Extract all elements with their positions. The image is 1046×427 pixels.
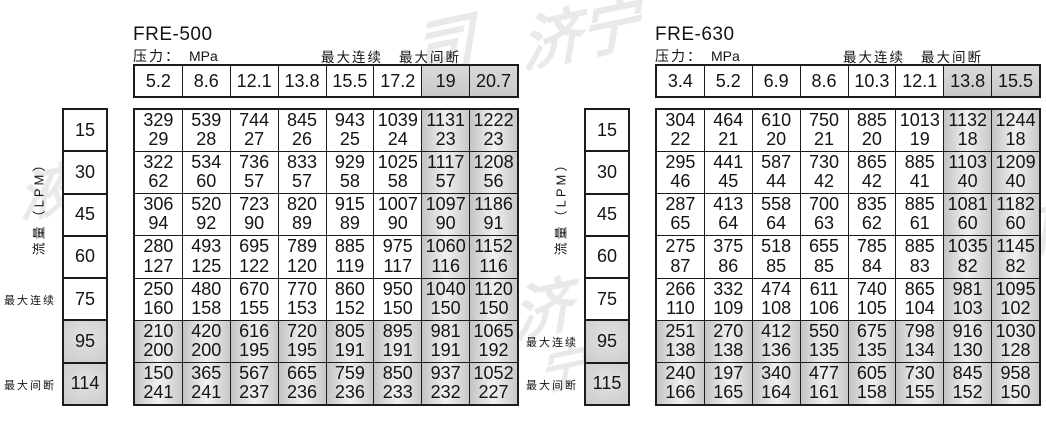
pressure-header-cell: 5.2 — [704, 66, 752, 96]
primary-value: 916 — [953, 322, 983, 341]
data-cell: 110340 — [943, 152, 991, 193]
primary-value: 587 — [761, 153, 791, 172]
secondary-value: 22 — [670, 130, 690, 149]
row-group-label: 最大间断 — [522, 377, 578, 393]
primary-value: 210 — [143, 322, 173, 341]
data-cell: 113123 — [421, 110, 469, 151]
primary-value: 322 — [143, 153, 173, 172]
primary-value: 304 — [665, 111, 695, 130]
data-row: 2661103321094741086111067401058651049811… — [657, 278, 1039, 320]
primary-value: 975 — [383, 237, 413, 256]
data-cell: 332109 — [704, 279, 752, 320]
primary-value: 240 — [665, 364, 695, 383]
flow-axis-label: 流量（LPM） — [28, 110, 48, 300]
secondary-value: 60 — [958, 214, 978, 233]
flow-axis-text: 流量（LPM） — [551, 155, 570, 255]
flow-label-cell: 60 — [584, 235, 630, 279]
data-cell: 937232 — [421, 363, 469, 404]
primary-value: 1052 — [474, 364, 514, 383]
data-cell: 114582 — [991, 236, 1039, 277]
secondary-value: 116 — [431, 257, 460, 276]
primary-value: 1209 — [996, 153, 1036, 172]
secondary-value: 116 — [479, 257, 508, 276]
flow-label-cell: 115 — [584, 362, 630, 406]
secondary-value: 136 — [761, 341, 791, 360]
data-row: 3069452092723908208991589100790109790118… — [135, 193, 517, 235]
secondary-value: 241 — [143, 383, 173, 402]
data-cell: 55864 — [752, 194, 800, 235]
secondary-value: 233 — [383, 383, 413, 402]
max-continuous-legend: 最大连续 — [321, 46, 383, 66]
pressure-header-cell: 10.3 — [848, 66, 896, 96]
secondary-value: 153 — [287, 299, 317, 318]
flow-label-cell: 15 — [584, 108, 630, 152]
primary-value: 700 — [809, 195, 839, 214]
max-intermittent-legend: 最大间断 — [399, 46, 461, 66]
primary-value: 1103 — [948, 153, 987, 172]
primary-value: 798 — [905, 322, 935, 341]
primary-value: 464 — [713, 111, 743, 130]
primary-value: 270 — [713, 322, 743, 341]
max-continuous-legend: 最大连续 — [843, 46, 905, 66]
flow-label-cell: 95 — [62, 319, 108, 363]
primary-value: 1030 — [996, 322, 1036, 341]
primary-value: 860 — [335, 280, 365, 299]
secondary-value: 191 — [431, 341, 461, 360]
primary-value: 518 — [761, 237, 791, 256]
secondary-value: 152 — [953, 383, 983, 402]
primary-value: 670 — [239, 280, 269, 299]
data-cell: 197165 — [704, 363, 752, 404]
model-title: FRE-630 — [655, 24, 735, 46]
flow-label-cell: 45 — [62, 193, 108, 237]
pressure-header-cell: 8.6 — [800, 66, 848, 96]
data-cell: 120940 — [991, 152, 1039, 193]
primary-value: 1065 — [474, 322, 514, 341]
data-cell: 805191 — [326, 321, 374, 362]
primary-value: 280 — [143, 237, 173, 256]
secondary-value: 192 — [479, 341, 509, 360]
secondary-value: 109 — [713, 299, 743, 318]
secondary-value: 160 — [143, 299, 173, 318]
primary-value: 885 — [857, 111, 887, 130]
secondary-value: 104 — [905, 299, 935, 318]
primary-value: 287 — [665, 195, 695, 214]
data-cell: 975117 — [373, 236, 421, 277]
primary-value: 950 — [383, 280, 413, 299]
data-cell: 61020 — [752, 110, 800, 151]
primary-value: 329 — [143, 111, 173, 130]
data-cell: 1052227 — [469, 363, 517, 404]
secondary-value: 87 — [670, 257, 690, 276]
pressure-label: 压力： — [133, 46, 181, 66]
data-cell: 32262 — [135, 152, 182, 193]
primary-value: 1039 — [378, 111, 418, 130]
data-cell: 916130 — [943, 321, 991, 362]
primary-value: 375 — [713, 237, 743, 256]
data-cell: 150241 — [135, 363, 182, 404]
column-legend: 最大连续 最大间断 — [843, 46, 983, 66]
data-row: 2401661971653401644771616051587301558451… — [657, 362, 1039, 404]
secondary-value: 23 — [436, 130, 456, 149]
secondary-value: 57 — [292, 172, 312, 191]
primary-value: 1040 — [426, 280, 466, 299]
pressure-header-cell: 3.4 — [657, 66, 704, 96]
row-group-label: 最大连续 — [0, 292, 56, 308]
secondary-value: 155 — [905, 383, 935, 402]
primary-value: 1025 — [378, 153, 418, 172]
data-cell: 958150 — [991, 363, 1039, 404]
secondary-value: 158 — [191, 299, 221, 318]
primary-value: 655 — [809, 237, 839, 256]
secondary-value: 200 — [143, 341, 173, 360]
data-cell: 412136 — [752, 321, 800, 362]
data-cell: 100790 — [373, 194, 421, 235]
primary-value: 885 — [905, 195, 935, 214]
primary-value: 695 — [239, 237, 269, 256]
data-cell: 27587 — [657, 236, 704, 277]
data-cell: 240166 — [657, 363, 704, 404]
secondary-value: 106 — [809, 299, 839, 318]
primary-value: 895 — [383, 322, 413, 341]
data-cell: 789120 — [278, 236, 326, 277]
secondary-value: 227 — [479, 383, 509, 402]
primary-value: 730 — [809, 153, 839, 172]
data-cell: 37586 — [704, 236, 752, 277]
secondary-value: 161 — [809, 383, 839, 402]
data-cell: 865104 — [895, 279, 943, 320]
data-cell: 103924 — [373, 110, 421, 151]
pressure-header-cell: 5.2 — [135, 66, 182, 96]
primary-value: 493 — [191, 237, 221, 256]
secondary-value: 150 — [431, 299, 461, 318]
secondary-value: 23 — [484, 130, 504, 149]
flow-label-column: 153045607595115 — [584, 108, 630, 406]
data-cell: 109790 — [421, 194, 469, 235]
secondary-value: 90 — [388, 214, 408, 233]
pressure-axis-line: 压力： MPa — [133, 46, 218, 66]
primary-value: 833 — [287, 153, 317, 172]
flow-label-cell: 75 — [584, 277, 630, 321]
fre-630-table: FRE-630 压力： MPa 最大连续 最大间断 流量（LPM） 3.45.2… — [522, 0, 1046, 427]
secondary-value: 103 — [953, 299, 983, 318]
secondary-value: 92 — [196, 214, 216, 233]
secondary-value: 61 — [910, 214, 930, 233]
data-cell: 53928 — [182, 110, 230, 151]
secondary-value: 200 — [191, 341, 221, 360]
secondary-value: 102 — [1001, 299, 1031, 318]
secondary-value: 90 — [244, 214, 264, 233]
data-cell: 78584 — [848, 236, 896, 277]
data-cell: 493125 — [182, 236, 230, 277]
data-cell: 845152 — [943, 363, 991, 404]
column-legend: 最大连续 最大间断 — [321, 46, 461, 66]
data-cell: 88561 — [895, 194, 943, 235]
secondary-value: 65 — [670, 214, 690, 233]
primary-value: 611 — [810, 280, 839, 299]
pressure-header-cell: 15.5 — [326, 66, 374, 96]
secondary-value: 62 — [862, 214, 882, 233]
model-title: FRE-500 — [133, 24, 213, 46]
flow-label-cell: 95 — [584, 319, 630, 363]
secondary-value: 236 — [335, 383, 365, 402]
pressure-header-cell: 12.1 — [895, 66, 943, 96]
secondary-value: 44 — [766, 172, 786, 191]
primary-value: 865 — [857, 153, 887, 172]
primary-value: 937 — [431, 364, 461, 383]
flow-label-cell: 45 — [584, 193, 630, 237]
primary-value: 885 — [905, 237, 935, 256]
secondary-value: 236 — [287, 383, 317, 402]
primary-value: 616 — [239, 322, 269, 341]
primary-value: 558 — [761, 195, 791, 214]
secondary-value: 45 — [718, 172, 738, 191]
secondary-value: 60 — [1006, 214, 1026, 233]
primary-value: 266 — [665, 280, 695, 299]
data-cell: 1152116 — [469, 236, 517, 277]
data-cell: 73657 — [230, 152, 278, 193]
secondary-value: 152 — [335, 299, 365, 318]
secondary-value: 110 — [666, 299, 695, 318]
secondary-value: 165 — [713, 383, 743, 402]
primary-value: 539 — [191, 111, 221, 130]
secondary-value: 40 — [958, 172, 978, 191]
primary-value: 981 — [953, 280, 983, 299]
data-cell: 1030128 — [991, 321, 1039, 362]
data-cell: 74427 — [230, 110, 278, 151]
primary-value: 1131 — [426, 111, 465, 130]
secondary-value: 28 — [196, 130, 216, 149]
pressure-header-cell: 19 — [421, 66, 469, 96]
secondary-value: 127 — [143, 257, 173, 276]
secondary-value: 82 — [1006, 257, 1026, 276]
primary-value: 1152 — [474, 237, 513, 256]
secondary-value: 64 — [766, 214, 786, 233]
data-cell: 73042 — [800, 152, 848, 193]
data-cell: 53460 — [182, 152, 230, 193]
pressure-axis-line: 压力： MPa — [655, 46, 740, 66]
data-cell: 118691 — [469, 194, 517, 235]
secondary-value: 58 — [340, 172, 360, 191]
primary-value: 759 — [335, 364, 365, 383]
data-cell: 30694 — [135, 194, 182, 235]
secondary-value: 237 — [239, 383, 269, 402]
secondary-value: 26 — [292, 130, 312, 149]
data-row: 3226253460736578335792958102558111757120… — [135, 151, 517, 193]
primary-value: 441 — [713, 153, 743, 172]
primary-value: 1120 — [474, 280, 513, 299]
primary-value: 413 — [713, 195, 743, 214]
data-cell: 30422 — [657, 110, 704, 151]
primary-value: 477 — [809, 364, 839, 383]
secondary-value: 18 — [958, 130, 978, 149]
data-cell: 675135 — [848, 321, 896, 362]
primary-value: 1222 — [474, 111, 514, 130]
secondary-value: 150 — [1001, 383, 1031, 402]
data-cell: 611106 — [800, 279, 848, 320]
secondary-value: 89 — [340, 214, 360, 233]
flow-label-column: 153045607595114 — [62, 108, 108, 406]
secondary-value: 21 — [718, 130, 738, 149]
data-cell: 86542 — [848, 152, 896, 193]
data-row: 3292953928744278452694325103924113123122… — [135, 110, 517, 151]
primary-value: 365 — [191, 364, 221, 383]
secondary-value: 83 — [910, 257, 930, 276]
data-cell: 670155 — [230, 279, 278, 320]
data-cell: 111757 — [421, 152, 469, 193]
data-cell: 91589 — [326, 194, 374, 235]
data-cell: 94325 — [326, 110, 374, 151]
pressure-header-cell: 8.6 — [182, 66, 230, 96]
data-cell: 88541 — [895, 152, 943, 193]
secondary-value: 27 — [244, 130, 264, 149]
pressure-header-cell: 13.8 — [943, 66, 991, 96]
secondary-value: 41 — [910, 172, 930, 191]
data-cell: 950150 — [373, 279, 421, 320]
primary-value: 958 — [1001, 364, 1031, 383]
data-cell: 1060116 — [421, 236, 469, 277]
primary-value: 1035 — [948, 237, 988, 256]
data-cell: 32929 — [135, 110, 182, 151]
data-cell: 365241 — [182, 363, 230, 404]
data-cell: 70063 — [800, 194, 848, 235]
secondary-value: 195 — [239, 341, 269, 360]
primary-value: 332 — [713, 280, 743, 299]
primary-value: 550 — [809, 322, 839, 341]
data-cell: 798134 — [895, 321, 943, 362]
primary-value: 197 — [713, 364, 743, 383]
data-cell: 477161 — [800, 363, 848, 404]
data-cell: 759236 — [326, 363, 374, 404]
primary-value: 1081 — [948, 195, 988, 214]
secondary-value: 19 — [910, 130, 930, 149]
flow-axis-text: 流量（LPM） — [29, 155, 48, 255]
primary-value: 850 — [383, 364, 413, 383]
secondary-value: 130 — [953, 341, 983, 360]
primary-value: 567 — [239, 364, 269, 383]
pressure-header-cell: 6.9 — [752, 66, 800, 96]
pressure-unit: MPa — [711, 48, 740, 64]
pressure-unit: MPa — [189, 48, 218, 64]
data-cell: 29546 — [657, 152, 704, 193]
secondary-value: 158 — [857, 383, 887, 402]
data-cell: 270138 — [704, 321, 752, 362]
primary-value: 885 — [905, 153, 935, 172]
secondary-value: 138 — [665, 341, 695, 360]
data-cell: 770153 — [278, 279, 326, 320]
data-cell: 280127 — [135, 236, 182, 277]
primary-value: 1145 — [996, 237, 1035, 256]
primary-value: 981 — [431, 322, 461, 341]
data-cell: 1120150 — [469, 279, 517, 320]
data-cell: 474108 — [752, 279, 800, 320]
secondary-value: 58 — [388, 172, 408, 191]
primary-value: 340 — [761, 364, 791, 383]
primary-value: 420 — [191, 322, 221, 341]
data-cell: 103582 — [943, 236, 991, 277]
pressure-header-cell: 13.8 — [278, 66, 326, 96]
pressure-header-cell: 20.7 — [469, 66, 517, 96]
primary-value: 665 — [287, 364, 317, 383]
fre-500-table: FRE-500 压力： MPa 最大连续 最大间断 流量（LPM） 5.28.6… — [0, 0, 523, 427]
pressure-header-cell: 12.1 — [230, 66, 278, 96]
primary-value: 1244 — [996, 111, 1036, 130]
data-cell: 266110 — [657, 279, 704, 320]
secondary-value: 57 — [244, 172, 264, 191]
flow-label-cell: 30 — [584, 150, 630, 194]
primary-value: 275 — [665, 237, 695, 256]
data-cell: 65585 — [800, 236, 848, 277]
data-cell: 83562 — [848, 194, 896, 235]
data-cell: 41364 — [704, 194, 752, 235]
primary-value: 534 — [191, 153, 221, 172]
data-cell: 730155 — [895, 363, 943, 404]
secondary-value: 24 — [388, 130, 408, 149]
secondary-value: 135 — [809, 341, 839, 360]
secondary-value: 122 — [239, 257, 269, 276]
primary-value: 1182 — [996, 195, 1035, 214]
data-cell: 1065192 — [469, 321, 517, 362]
flow-label-cell: 60 — [62, 235, 108, 279]
secondary-value: 155 — [239, 299, 269, 318]
data-cell: 480158 — [182, 279, 230, 320]
data-cell: 850233 — [373, 363, 421, 404]
data-cell: 740105 — [848, 279, 896, 320]
row-group-label: 最大连续 — [522, 334, 578, 350]
secondary-value: 42 — [862, 172, 882, 191]
primary-value: 750 — [809, 111, 839, 130]
secondary-value: 138 — [713, 341, 743, 360]
secondary-value: 86 — [718, 257, 738, 276]
primary-value: 1132 — [948, 111, 987, 130]
data-cell: 113218 — [943, 110, 991, 151]
data-cell: 210200 — [135, 321, 182, 362]
data-cell: 1095102 — [991, 279, 1039, 320]
primary-value: 789 — [287, 237, 317, 256]
flow-label-cell: 75 — [62, 277, 108, 321]
secondary-value: 85 — [766, 257, 786, 276]
data-cell: 58744 — [752, 152, 800, 193]
data-cell: 101319 — [895, 110, 943, 151]
secondary-value: 150 — [383, 299, 413, 318]
primary-value: 744 — [239, 111, 269, 130]
pressure-label: 压力： — [655, 46, 703, 66]
data-row: 2954644145587447304286542885411103401209… — [657, 151, 1039, 193]
secondary-value: 20 — [862, 130, 882, 149]
primary-value: 720 — [287, 322, 317, 341]
data-row: 2511382701384121365501356751357981349161… — [657, 320, 1039, 362]
data-grid: 3042246421610207502188520101319113218124… — [655, 108, 1041, 406]
secondary-value: 108 — [761, 299, 791, 318]
secondary-value: 91 — [484, 214, 504, 233]
pressure-header-cell: 15.5 — [991, 66, 1039, 96]
primary-value: 785 — [857, 237, 887, 256]
pressure-header-row: 5.28.612.113.815.517.21920.7 — [133, 64, 519, 98]
data-cell: 550135 — [800, 321, 848, 362]
data-cell: 895191 — [373, 321, 421, 362]
secondary-value: 42 — [814, 172, 834, 191]
primary-value: 845 — [953, 364, 983, 383]
data-row: 1502413652415672376652367592368502339372… — [135, 362, 517, 404]
primary-value: 1186 — [474, 195, 513, 214]
row-group-label: 最大间断 — [0, 377, 56, 393]
data-cell: 120856 — [469, 152, 517, 193]
data-cell: 250160 — [135, 279, 182, 320]
data-cell: 981191 — [421, 321, 469, 362]
data-cell: 1040150 — [421, 279, 469, 320]
data-cell: 420200 — [182, 321, 230, 362]
primary-value: 610 — [761, 111, 791, 130]
